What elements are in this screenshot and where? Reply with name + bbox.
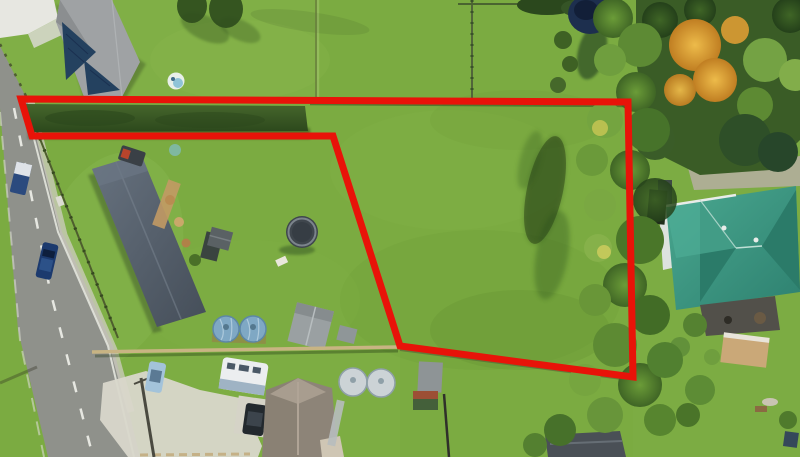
hedge-texture — [155, 112, 265, 128]
tank-cap — [250, 324, 256, 330]
tree-canopy — [616, 72, 656, 112]
shed-roof — [417, 361, 443, 392]
bush — [189, 254, 201, 266]
chimney — [754, 238, 759, 243]
tree-canopy-dark — [758, 132, 798, 172]
garden-item — [169, 144, 181, 156]
caravan-window — [252, 367, 261, 374]
tank-cap — [350, 377, 356, 383]
tank-cap — [223, 324, 229, 330]
tree-canopy — [626, 108, 670, 152]
tree-canopy-yellow — [592, 120, 608, 136]
bush — [683, 313, 707, 337]
patio-furniture — [754, 312, 766, 324]
tree-canopy — [576, 144, 608, 176]
car-windows — [149, 369, 162, 383]
tank-cap — [378, 378, 384, 384]
bush — [704, 349, 720, 365]
dark-car — [242, 403, 267, 437]
pergola — [720, 332, 769, 367]
playhouse — [413, 391, 438, 410]
garden-bench — [755, 406, 767, 412]
tall-shed — [417, 361, 443, 392]
tree-canopy-yellow — [597, 245, 611, 259]
aerial-photo — [0, 0, 800, 457]
bottom-fence-bits — [140, 454, 250, 455]
tree-canopy — [616, 216, 664, 264]
tree-canopy — [644, 404, 676, 436]
tree-canopy — [647, 342, 683, 378]
orange-tree — [664, 74, 696, 106]
garden-item — [174, 217, 184, 227]
tree-canopy — [630, 295, 670, 335]
tree-canopy — [587, 397, 623, 433]
hedge-texture — [45, 110, 135, 126]
caravan-window — [227, 363, 236, 370]
trampoline-mat — [292, 222, 312, 242]
patio-furniture — [724, 316, 732, 324]
bush — [676, 403, 700, 427]
top-right-trees — [635, 0, 800, 175]
orange-tree — [693, 58, 737, 102]
tree-canopy — [579, 284, 611, 316]
bush — [685, 375, 715, 405]
garden-item — [165, 195, 175, 205]
tree-canopy — [523, 433, 547, 457]
garden-item — [182, 239, 191, 248]
playhouse-roof — [413, 391, 438, 399]
tree-canopy — [584, 189, 616, 221]
bush — [550, 77, 566, 93]
orange-tree — [721, 16, 749, 44]
bush — [554, 31, 572, 49]
screenshot-root — [0, 0, 800, 457]
tree-canopy — [594, 44, 626, 76]
chimney — [722, 226, 727, 231]
car-roof — [246, 411, 263, 427]
garden-item-dark — [783, 431, 799, 448]
tree-canopy-dark — [633, 178, 677, 222]
bush — [779, 411, 797, 429]
bush — [562, 56, 578, 72]
pool-detail — [171, 77, 175, 81]
paddling-pool — [168, 73, 185, 90]
tree-canopy — [544, 414, 576, 446]
garden-path — [762, 398, 778, 406]
